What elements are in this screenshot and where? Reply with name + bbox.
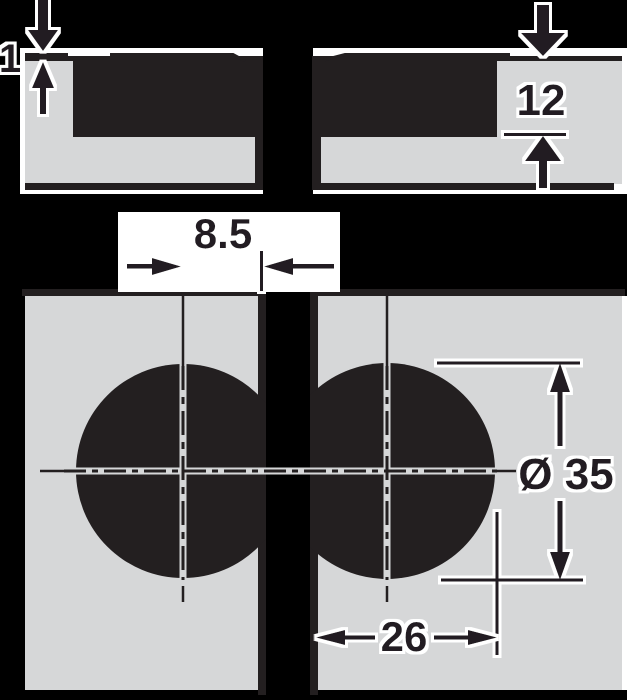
down-arrow-shaft bbox=[38, 0, 48, 31]
cup-bore-section-left bbox=[73, 56, 263, 137]
dim-label-cup-depth: 12 bbox=[517, 76, 566, 125]
upper-dim-shaft bbox=[558, 390, 563, 446]
panel-surface-line bbox=[25, 56, 80, 61]
lower-dim-shaft bbox=[558, 501, 563, 555]
left-arrow-tail bbox=[127, 264, 154, 269]
cross-section-left bbox=[20, 48, 263, 194]
down-arrow-icon bbox=[28, 30, 58, 51]
side-tangent-line bbox=[496, 512, 499, 655]
dim-label-edge-to-bore: 26 bbox=[381, 613, 428, 660]
dim-label-drilling-distance: 8.5 bbox=[194, 210, 252, 257]
edge-extension-tick bbox=[260, 251, 263, 291]
left-arrow-tail bbox=[345, 636, 375, 640]
panel-bottom-edge bbox=[313, 183, 614, 190]
depth-extension-line bbox=[504, 133, 566, 136]
cup-bore-section-right bbox=[312, 56, 497, 137]
right-arrow-tail bbox=[434, 636, 468, 640]
up-arrow-shaft bbox=[40, 88, 46, 114]
panel-surface-line bbox=[497, 56, 622, 61]
dim-label-rim-protrusion: 1 bbox=[0, 37, 21, 81]
panel-bottom-edge bbox=[25, 183, 263, 190]
dim-label-cup-diameter: Ø 35 bbox=[518, 450, 613, 499]
dim-drilling-distance: 8.5 bbox=[118, 210, 340, 292]
up-arrow-shaft bbox=[539, 161, 547, 188]
drawing-canvas: 1 12 bbox=[0, 0, 627, 700]
down-arrow-shaft bbox=[537, 5, 549, 35]
right-arrow-tail bbox=[293, 264, 334, 269]
paper-edge-sliver bbox=[622, 296, 627, 690]
bottom-tangent-line bbox=[441, 579, 583, 582]
panel-top-edge bbox=[310, 289, 625, 296]
hinge-drilling-diagram: 1 12 bbox=[0, 0, 627, 700]
top-tangent-line bbox=[437, 362, 580, 365]
cross-section-right bbox=[312, 48, 627, 194]
